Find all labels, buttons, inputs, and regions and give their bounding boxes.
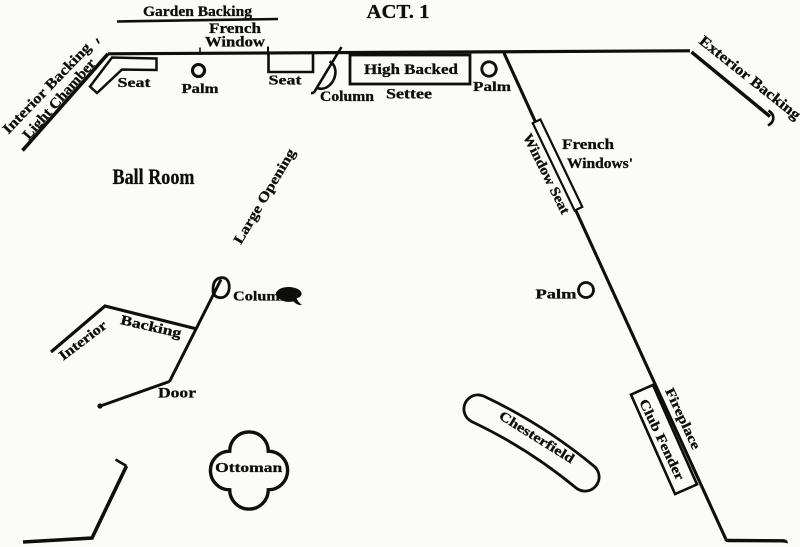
svg-text:French: French [562, 137, 614, 153]
svg-text:Palm: Palm [182, 82, 219, 97]
svg-text:Window: Window [205, 35, 266, 51]
svg-text:Settee: Settee [386, 87, 433, 103]
svg-text:Garden Backing: Garden Backing [143, 4, 253, 20]
svg-text:Seat: Seat [118, 76, 151, 91]
svg-text:Ottoman: Ottoman [215, 461, 282, 476]
svg-text:Door: Door [158, 386, 196, 402]
svg-text:Ball Room: Ball Room [113, 164, 195, 189]
svg-text:High Backed: High Backed [364, 62, 459, 78]
svg-text:Palm: Palm [473, 80, 511, 95]
svg-text:Seat: Seat [269, 74, 302, 89]
svg-text:Windows': Windows' [567, 156, 633, 172]
svg-text:ACT. 1: ACT. 1 [367, 2, 430, 23]
svg-text:Palm: Palm [536, 288, 577, 303]
svg-text:Column: Column [320, 89, 374, 105]
